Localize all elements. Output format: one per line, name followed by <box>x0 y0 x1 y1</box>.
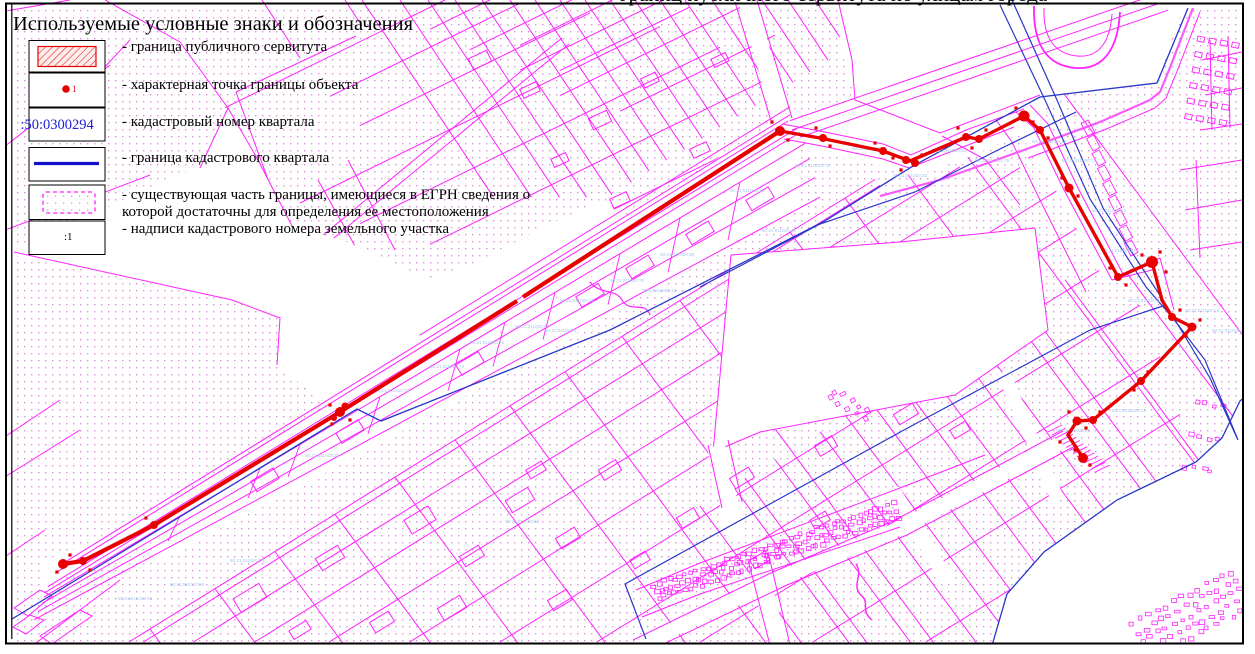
svg-text:- существующая часть границы,: - существующая часть границы, имеющиеся … <box>122 187 530 203</box>
svg-text:50:21:011020:55: 50:21:011020:55 <box>505 519 540 524</box>
svg-text:50:21:011020:48: 50:21:011020:48 <box>1128 298 1163 303</box>
svg-text:50:21:011020:20: 50:21:011020:20 <box>470 340 505 345</box>
svg-text:50:21:011020:80: 50:21:011020:80 <box>170 582 205 587</box>
svg-text:- кадастровый номер квартала: - кадастровый номер квартала <box>122 114 315 130</box>
svg-text:50:21:011020:42: 50:21:011020:42 <box>1032 139 1067 144</box>
svg-text:50:21:011020:5: 50:21:011020:5 <box>545 328 577 333</box>
svg-text:Используемые условные знаки и: Используемые условные знаки и обозначени… <box>13 13 414 35</box>
svg-text:50:21:011020:42: 50:21:011020:42 <box>1212 328 1247 333</box>
svg-text::50:0300294: :50:0300294 <box>21 117 95 133</box>
svg-text:50:21:011020:15: 50:21:011020:15 <box>1185 308 1220 313</box>
svg-text:50:21:011020:32: 50:21:011020:32 <box>1112 408 1147 413</box>
svg-text:50:21:011020:22: 50:21:011020:22 <box>1102 248 1137 253</box>
svg-text:50:21:011020:42: 50:21:011020:42 <box>762 228 797 233</box>
svg-text:50:21:011020:50: 50:21:011020:50 <box>230 558 265 563</box>
svg-text:50:21:011020:12: 50:21:011020:12 <box>642 288 677 293</box>
svg-text:50:21:011020:75: 50:21:011020:75 <box>795 163 830 168</box>
svg-text:- характерная точка границы об: - характерная точка границы объекта <box>122 77 359 93</box>
svg-text:50:21:011020:70: 50:21:011020:70 <box>430 364 465 369</box>
svg-text:50:21:011020:75: 50:21:011020:75 <box>975 158 1010 163</box>
svg-text:- граница кадастрового квартал: - граница кадастрового квартала <box>122 150 330 166</box>
svg-text:1: 1 <box>72 84 77 94</box>
svg-text:50:21:011020:70: 50:21:011020:70 <box>610 278 645 283</box>
svg-text:которой достаточны для определ: которой достаточны для определения ее ме… <box>122 204 489 220</box>
svg-text:- граница публичного сервитута: - граница публичного сервитута <box>122 39 327 55</box>
svg-text::1: :1 <box>64 231 73 243</box>
svg-text:50:21:011020:30: 50:21:011020:30 <box>660 252 695 257</box>
svg-text:- надписи кадастрового номера: - надписи кадастрового номера земельного… <box>122 221 449 237</box>
svg-text:50:21:011020:35: 50:21:011020:35 <box>305 453 340 458</box>
svg-text:границ публичного сервитута по: границ публичного сервитута по улицам го… <box>620 0 1048 6</box>
svg-text:50:21:011020:83: 50:21:011020:83 <box>893 173 928 178</box>
svg-text:50:21:011020:28: 50:21:011020:28 <box>118 596 153 601</box>
svg-text:50:21:011020:12: 50:21:011020:12 <box>1092 208 1127 213</box>
svg-text:50:21:011020:20: 50:21:011020:20 <box>560 298 595 303</box>
svg-text:50:21:011020:72: 50:21:011020:72 <box>1062 158 1097 163</box>
svg-text:50:21:011020:10: 50:21:011020:10 <box>730 188 765 193</box>
